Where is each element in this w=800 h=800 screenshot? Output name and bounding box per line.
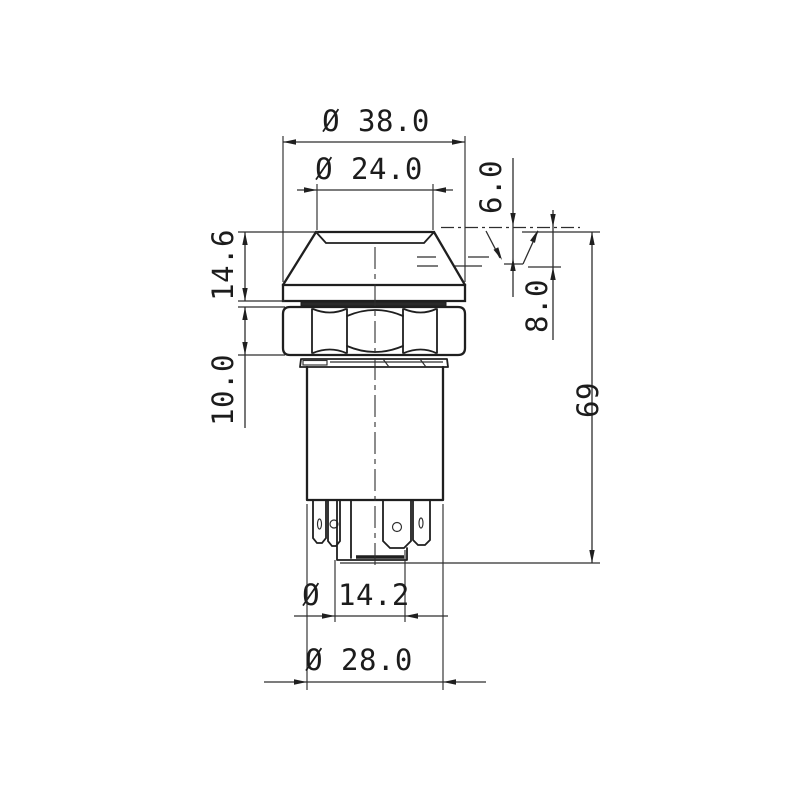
dimension-69: 69: [340, 232, 605, 563]
hex-nut: [283, 307, 465, 355]
terminal-tab-left-1: [313, 500, 326, 543]
dim-label-dia-28: Ø 28.0: [305, 643, 413, 677]
dim-label-14-6: 14.6: [206, 229, 240, 301]
dim-label-8-0: 8.0: [520, 279, 554, 333]
technical-drawing: Ø 38.0 Ø 24.0 14.6 10.0 6.0 8.0: [0, 0, 800, 800]
terminal-tab-right-1: [383, 500, 411, 548]
leader-arrow-up: [530, 229, 540, 243]
groove-detail: [441, 228, 580, 268]
dimension-dia-24: Ø 24.0: [297, 152, 453, 230]
terminal-tab-right-2: [413, 500, 430, 545]
center-stem: [337, 500, 407, 560]
terminal-hole-slot-left: [318, 519, 322, 529]
dim-label-dia-38: Ø 38.0: [322, 104, 430, 138]
dim-label-dia-24: Ø 24.0: [315, 152, 423, 186]
dimension-10-0: 10.0: [206, 307, 285, 428]
dim-label-10-0: 10.0: [206, 354, 240, 426]
terminal-hole-right: [393, 523, 402, 532]
lock-washer: [300, 359, 448, 367]
dimension-14-6: 14.6: [206, 229, 318, 301]
terminals: [313, 500, 430, 560]
terminal-hole-slot-right: [419, 518, 423, 528]
leader-arrow-down: [494, 247, 505, 261]
dim-label-6-0: 6.0: [474, 160, 508, 214]
dimension-8-0: 8.0: [520, 210, 556, 340]
gasket: [301, 302, 446, 306]
drawing-canvas: Ø 38.0 Ø 24.0 14.6 10.0 6.0 8.0: [0, 0, 800, 800]
dim-label-69: 69: [571, 382, 605, 418]
button-cap: [283, 232, 489, 301]
dim-label-dia-14-2: Ø 14.2: [302, 578, 410, 612]
dimension-dia-38: Ø 38.0: [283, 104, 465, 282]
